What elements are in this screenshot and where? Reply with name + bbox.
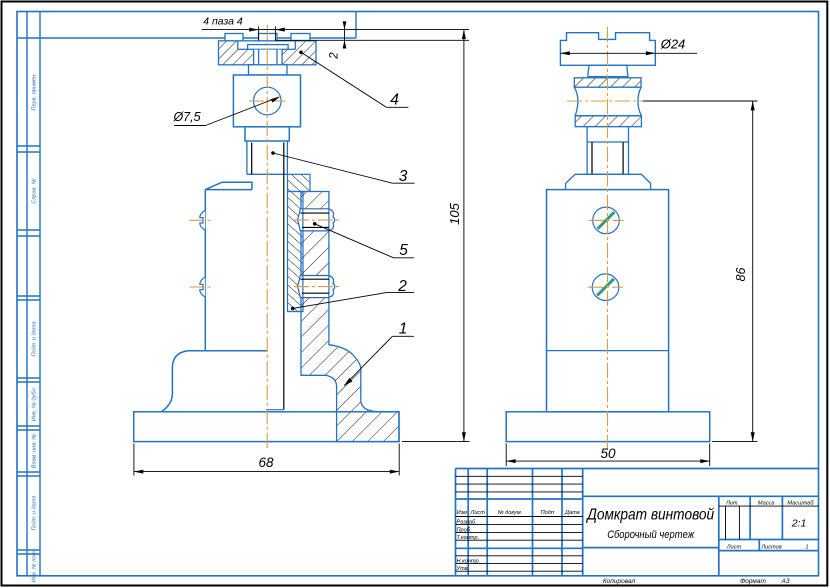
svg-text:Листов: Листов bbox=[760, 545, 781, 551]
svg-text:Формат: Формат bbox=[740, 578, 766, 585]
svg-text:А3: А3 bbox=[781, 578, 790, 585]
svg-text:Утв.: Утв. bbox=[456, 566, 470, 572]
svg-text:Подп. и дата: Подп. и дата bbox=[32, 321, 38, 356]
svg-text:Справ. №: Справ. № bbox=[32, 178, 38, 203]
svg-text:Н.контр.: Н.контр. bbox=[457, 558, 481, 564]
svg-text:4: 4 bbox=[390, 92, 399, 109]
svg-text:Ø7,5: Ø7,5 bbox=[172, 110, 200, 124]
svg-text:Инв. № дубл.: Инв. № дубл. bbox=[32, 387, 38, 421]
svg-text:Ø24: Ø24 bbox=[660, 37, 686, 52]
svg-text:Инв. № подл.: Инв. № подл. bbox=[32, 548, 38, 583]
svg-text:68: 68 bbox=[258, 455, 274, 470]
svg-text:5: 5 bbox=[399, 242, 408, 259]
svg-text:Лист: Лист bbox=[469, 510, 485, 516]
svg-text:Дата: Дата bbox=[564, 510, 580, 516]
svg-text:1: 1 bbox=[805, 545, 808, 551]
svg-text:50: 50 bbox=[600, 446, 616, 461]
svg-text:Копировал: Копировал bbox=[603, 578, 636, 585]
svg-text:Изм: Изм bbox=[457, 510, 468, 516]
svg-text:1: 1 bbox=[399, 320, 408, 337]
svg-text:Перв. примен.: Перв. примен. bbox=[32, 73, 38, 110]
svg-text:Сборочный чертеж: Сборочный чертеж bbox=[607, 529, 694, 541]
svg-text:86: 86 bbox=[734, 268, 748, 282]
svg-text:Масштаб: Масштаб bbox=[787, 500, 814, 506]
svg-text:Разраб.: Разраб. bbox=[457, 519, 477, 525]
svg-text:Подп: Подп bbox=[541, 510, 554, 516]
svg-text:Взам. инв. №: Взам. инв. № bbox=[32, 434, 38, 469]
svg-text:3: 3 bbox=[399, 168, 408, 185]
svg-text:2:1: 2:1 bbox=[791, 518, 807, 530]
svg-text:2: 2 bbox=[329, 52, 341, 60]
svg-text:Проб.: Проб. bbox=[457, 527, 472, 533]
svg-text:№ докум.: № докум. bbox=[498, 510, 523, 516]
svg-text:Масса: Масса bbox=[758, 500, 775, 506]
svg-text:105: 105 bbox=[447, 202, 462, 224]
svg-text:Подп. и дата: Подп. и дата bbox=[32, 495, 38, 530]
svg-text:Лит.: Лит. bbox=[725, 500, 739, 506]
svg-text:Лист: Лист bbox=[726, 545, 742, 551]
svg-text:Домкрат винтовой: Домкрат винтовой bbox=[585, 507, 714, 524]
svg-text:2: 2 bbox=[397, 278, 407, 295]
svg-text:4 паза 4: 4 паза 4 bbox=[203, 16, 243, 28]
svg-text:Т.контр.: Т.контр. bbox=[457, 535, 480, 541]
